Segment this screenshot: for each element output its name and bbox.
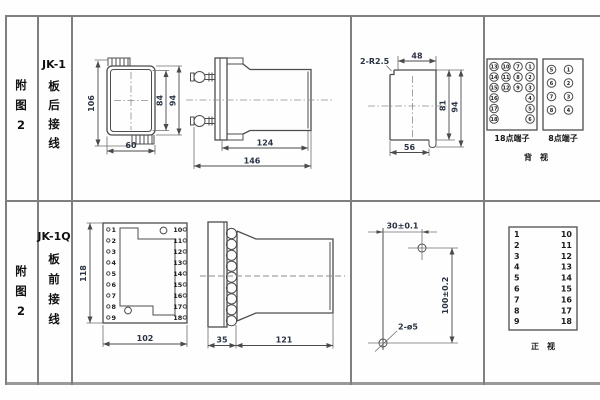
terminal-pin-number: 5 (112, 270, 117, 278)
terminal-pin-number: 17 (173, 303, 182, 311)
dim-106-label: 106 (87, 95, 96, 112)
terminal-pin-number: 4 (528, 96, 532, 102)
terminal-pin-number: 4 (112, 259, 117, 267)
terminal-pin-number: 8 (550, 108, 554, 114)
jk1-rear-and-side-view-drawing: 106 84 94 60 1 (71, 15, 350, 201)
side-view-dimensions: 124 146 (194, 127, 311, 169)
terminal-pin-number: 4 (567, 108, 571, 114)
terminal-pin-number: 11 (173, 237, 183, 245)
dim-94-label: 94 (451, 101, 460, 113)
terminal-pin-number: 6 (550, 81, 554, 87)
figure-char: 附 (5, 75, 37, 95)
terminal-pin-number: 16 (173, 292, 183, 300)
table-border-left (5, 15, 7, 385)
terminal-pin: 6 (547, 79, 556, 88)
terminal-pin-number: 12 (173, 248, 182, 256)
terminal-pin: 3 (564, 92, 573, 101)
terminal-pin: 1 (526, 62, 535, 71)
dim-56-label: 56 (404, 143, 416, 152)
wiring-char: 接 (37, 115, 71, 134)
rear-view-caption: 背 视 (524, 152, 548, 162)
cutout-outline (390, 70, 437, 148)
terminal-pin: 9 (514, 83, 523, 92)
figure-char: 图 (5, 95, 37, 115)
terminal-pin: 17 (490, 104, 499, 113)
terminal-screw (191, 116, 216, 127)
terminal-pin: 11 (173, 237, 186, 245)
model-name: JK-1Q (37, 229, 71, 245)
figure-char: 2 (5, 115, 37, 135)
terminal-number: 7 (514, 295, 520, 304)
terminal-pin-number: 14 (173, 270, 183, 278)
terminal-pin: 2 (107, 237, 116, 245)
terminal-pin: 9 (107, 314, 117, 322)
terminal-pin: 4 (526, 94, 535, 103)
terminal-pin-number: 10 (503, 64, 510, 70)
terminal-number: 10 (561, 230, 573, 239)
terminal-number: 5 (514, 274, 520, 283)
terminal-number: 1 (514, 230, 520, 239)
terminal-pin: 10 (502, 62, 511, 71)
terminal-block-8: 5 1 6 2 7 3 8 4 (543, 59, 583, 130)
front-view-caption: 正 视 (531, 341, 555, 351)
terminal-number: 11 (561, 241, 573, 250)
side-view-outline (208, 222, 333, 327)
terminal-pin-number: 13 (491, 64, 498, 70)
wiring-char: 线 (37, 309, 71, 329)
table-divider-2 (71, 15, 73, 385)
wiring-char: 接 (37, 289, 71, 309)
terminal-pin: 13 (173, 259, 186, 267)
terminal-pin-number: 5 (528, 106, 532, 112)
dim-100-label: 100±0.2 (441, 277, 450, 315)
drill-dimensions: 30±0.1 100±0.2 2-ø5 (368, 222, 452, 344)
row1-figure-label: 附 图 2 (5, 75, 37, 135)
terminal-pin-number: 12 (503, 85, 510, 91)
terminal-number: 13 (561, 263, 572, 272)
rear-terminal-layout: 13 10 7 1 14 11 8 2 15 12 9 3 16 4 17 5 … (483, 15, 600, 201)
table-divider-4 (483, 15, 485, 385)
terminal-number: 17 (561, 306, 572, 315)
terminal-pin: 18 (173, 314, 186, 322)
terminal-screw (191, 72, 216, 83)
terminal-8-label: 8点端子 (548, 133, 578, 143)
terminal-number: 16 (561, 295, 573, 304)
row2-model-label: JK-1Q 板 前 接 线 (37, 229, 71, 329)
terminal-pin-number: 15 (491, 85, 498, 91)
table-border-top (5, 15, 600, 17)
table-border-bottom (5, 382, 600, 385)
terminal-pin: 7 (547, 92, 556, 101)
terminal-pin: 8 (547, 106, 556, 115)
figure-char: 2 (5, 301, 37, 321)
terminal-pin: 14 (490, 73, 499, 82)
terminal-table-left-column: 1 2 3 4 5 6 7 8 9 (514, 230, 520, 326)
dim-124-label: 124 (257, 139, 274, 148)
terminal-pin: 7 (107, 292, 116, 300)
terminal-pin-number: 18 (173, 314, 183, 322)
terminal-pin-number: 1 (567, 67, 571, 73)
terminal-pin: 16 (173, 292, 186, 300)
front-view-terminals-left: 1 2 3 4 5 6 7 8 9 (107, 226, 117, 322)
terminal-pin-number: 5 (550, 67, 554, 73)
terminal-pin: 4 (107, 259, 117, 267)
dim-102-label: 102 (137, 334, 154, 343)
terminal-pin-number: 13 (173, 259, 182, 267)
terminal-pin-number: 11 (503, 75, 510, 81)
terminal-pin-number: 3 (567, 94, 571, 100)
mounting-hole (160, 227, 167, 234)
jk1q-drilling-plan: 30±0.1 100±0.2 2-ø5 (350, 201, 483, 383)
corner-radius-label: 2-R2.5 (360, 57, 390, 66)
mounting-hole (125, 307, 132, 314)
terminal-pin-number: 7 (112, 292, 117, 300)
dim-30-label: 30±0.1 (386, 222, 418, 231)
terminal-pin-number: 3 (528, 85, 532, 91)
terminal-pin-number: 9 (112, 314, 117, 322)
side-view-outline (191, 58, 312, 140)
terminal-pin: 5 (107, 270, 117, 278)
dim-146-label: 146 (244, 157, 261, 166)
terminal-pin-number: 14 (491, 75, 498, 81)
terminal-pin: 13 (490, 62, 499, 71)
terminal-pin: 8 (514, 73, 523, 82)
terminal-number: 2 (514, 241, 520, 250)
terminal-pin: 3 (526, 83, 535, 92)
terminal-pin-number: 6 (112, 281, 117, 289)
terminal-pin: 2 (564, 79, 573, 88)
figure-2-sheet: 附 图 2 JK-1 板 后 接 线 附 图 2 JK-1Q 板 前 接 线 (0, 0, 600, 400)
table-border-middle (5, 200, 600, 202)
dim-84-label: 84 (156, 95, 165, 107)
terminal-pin-number: 2 (567, 81, 571, 87)
row1-model-label: JK-1 板 后 接 线 (37, 57, 71, 153)
terminal-pin-number: 18 (491, 117, 498, 123)
wiring-char: 后 (37, 96, 71, 115)
terminal-number: 18 (561, 317, 573, 326)
terminal-pin: 10 (173, 226, 186, 234)
wiring-char: 前 (37, 269, 71, 289)
terminal-pin: 6 (526, 115, 535, 124)
dim-60-label: 60 (125, 141, 137, 150)
terminal-pin-number: 3 (112, 248, 117, 256)
dim-35-label: 35 (216, 336, 228, 345)
row2-figure-label: 附 图 2 (5, 261, 37, 321)
terminal-pin-number: 17 (491, 106, 498, 112)
terminal-pin: 15 (173, 281, 186, 289)
terminal-number: 9 (514, 317, 520, 326)
figure-char: 图 (5, 281, 37, 301)
terminal-pin: 2 (526, 73, 535, 82)
terminal-18-label: 18点端子 (494, 133, 529, 143)
terminal-pin-number: 10 (173, 226, 183, 234)
terminal-pin: 15 (490, 83, 499, 92)
wiring-char: 板 (37, 249, 71, 269)
terminal-pin-number: 1 (112, 226, 117, 234)
terminal-number: 3 (514, 252, 520, 261)
terminal-pin-number: 2 (112, 237, 117, 245)
wiring-char: 线 (37, 134, 71, 153)
rear-view-dimensions: 106 84 94 60 (87, 60, 182, 155)
dim-81-label: 81 (439, 100, 448, 112)
front-view-terminals-right: 10 11 12 13 14 15 16 17 18 (173, 226, 186, 322)
terminal-pin-number: 2 (528, 75, 532, 81)
wiring-char: 板 (37, 77, 71, 96)
figure-char: 附 (5, 261, 37, 281)
terminal-pin: 12 (173, 248, 186, 256)
terminal-pin: 5 (526, 104, 535, 113)
terminal-pin-number: 7 (516, 64, 520, 70)
terminal-pin: 11 (502, 73, 511, 82)
terminal-pin: 12 (502, 83, 511, 92)
terminal-pin-number: 8 (516, 75, 520, 81)
terminal-pin: 1 (564, 65, 573, 74)
terminal-pin: 16 (490, 94, 499, 103)
terminal-number: 6 (514, 285, 520, 294)
terminal-pin: 4 (564, 106, 573, 115)
terminal-block-18: 13 10 7 1 14 11 8 2 15 12 9 3 16 4 17 5 … (487, 59, 537, 130)
terminal-pin: 3 (107, 248, 116, 256)
hole-spec-label: 2-ø5 (398, 323, 418, 332)
dim-48-label: 48 (411, 52, 423, 61)
terminal-pin-number: 6 (528, 117, 532, 123)
terminal-pin: 7 (514, 62, 523, 71)
terminal-pin-number: 9 (516, 85, 520, 91)
terminal-pin-number: 15 (173, 281, 183, 289)
terminal-number: 14 (561, 274, 573, 283)
front-terminal-table: 1 2 3 4 5 6 7 8 9 10 11 12 13 14 15 16 1… (483, 201, 600, 383)
rear-view-centerlines (114, 72, 149, 130)
terminal-pin: 18 (490, 115, 499, 124)
terminal-pin: 5 (547, 65, 556, 74)
terminal-number: 4 (514, 263, 520, 272)
terminal-pin-number: 7 (550, 94, 554, 100)
terminal-pin: 6 (107, 281, 117, 289)
jk1q-front-and-side-view-drawing: 1 2 3 4 5 6 7 8 9 10 11 12 13 14 15 16 1… (71, 201, 350, 383)
terminal-pin-number: 8 (112, 303, 117, 311)
terminal-table-right-column: 10 11 12 13 14 15 16 17 18 (561, 230, 573, 326)
model-name: JK-1 (37, 57, 71, 73)
terminal-pin: 14 (173, 270, 186, 278)
front-view-dimensions: 118 102 (79, 223, 187, 347)
table-divider-3 (350, 15, 352, 385)
terminal-pin: 17 (173, 303, 186, 311)
terminal-pin-number: 1 (528, 64, 532, 70)
terminal-number: 12 (561, 252, 572, 261)
terminal-number: 15 (561, 285, 573, 294)
dim-94-label: 94 (169, 95, 178, 107)
dim-118-label: 118 (79, 265, 88, 282)
jk1-panel-cutout-drawing: 2-R2.5 48 81 94 56 (350, 15, 483, 201)
terminal-pin-number: 16 (491, 96, 498, 102)
terminal-pin: 8 (107, 303, 117, 311)
terminal-number: 8 (514, 306, 520, 315)
terminal-pin: 1 (107, 226, 117, 234)
dim-121-label: 121 (276, 336, 293, 345)
